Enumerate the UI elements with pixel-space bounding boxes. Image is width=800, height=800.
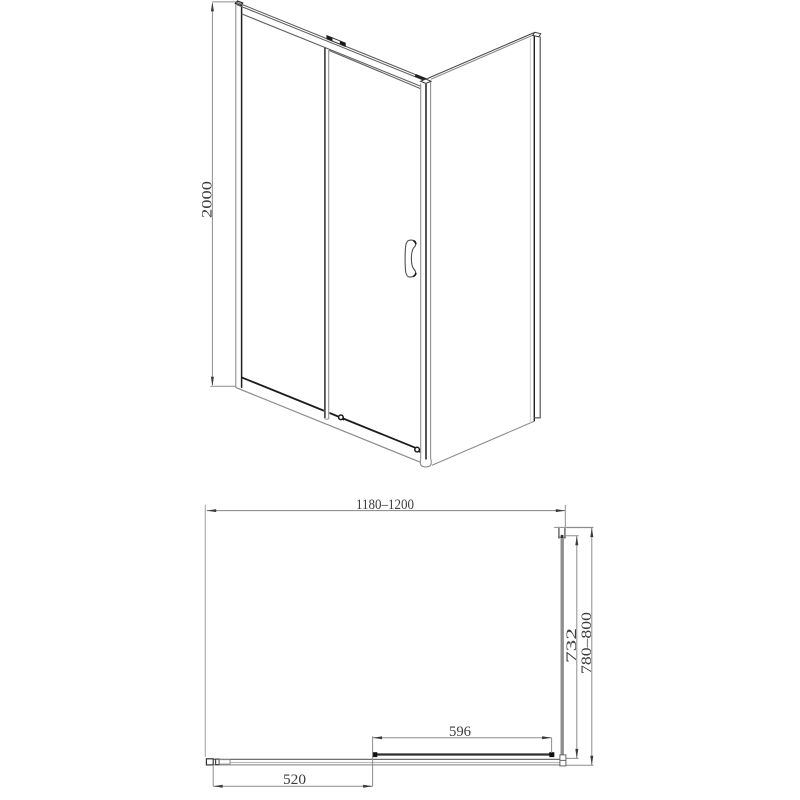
svg-text:596: 596 xyxy=(449,724,471,740)
svg-text:1180–1200: 1180–1200 xyxy=(356,497,414,513)
svg-text:780–800: 780–800 xyxy=(579,612,595,674)
svg-text:2000: 2000 xyxy=(199,181,215,218)
svg-text:732: 732 xyxy=(564,628,580,663)
svg-text:520: 520 xyxy=(283,772,306,788)
